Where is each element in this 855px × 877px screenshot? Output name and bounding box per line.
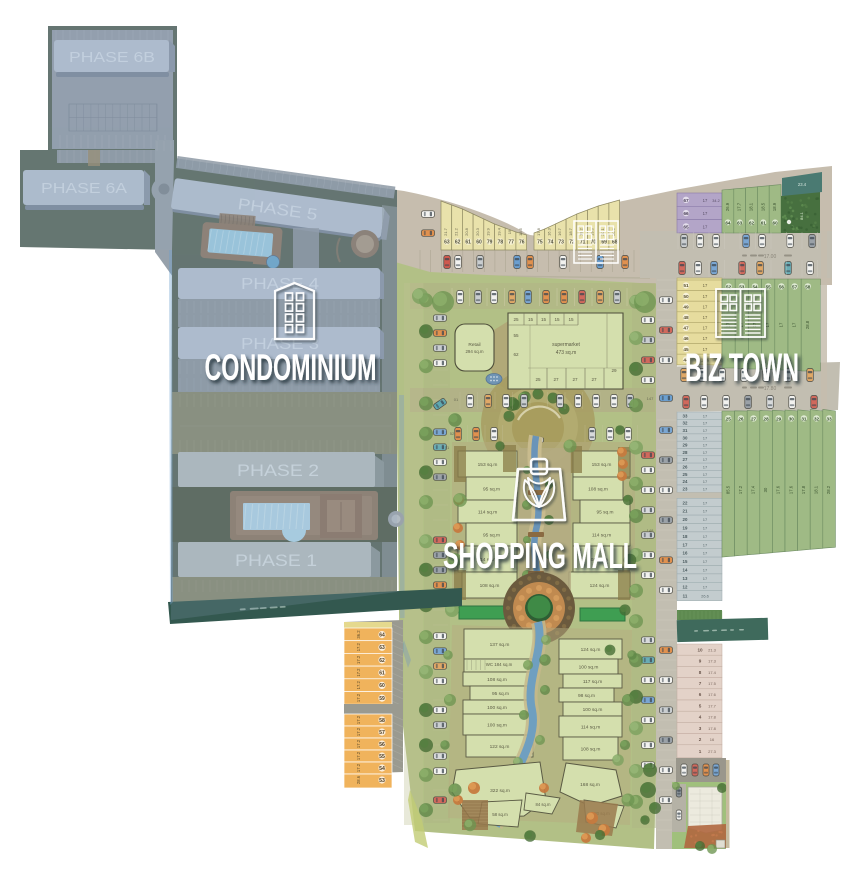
svg-text:29: 29 (611, 368, 617, 373)
svg-text:17: 17 (703, 559, 708, 564)
svg-text:17.6: 17.6 (788, 485, 793, 494)
svg-text:17: 17 (703, 294, 708, 299)
svg-text:17: 17 (703, 336, 708, 341)
svg-text:19: 19 (507, 229, 512, 234)
svg-text:25: 25 (683, 472, 688, 477)
svg-text:32: 32 (683, 421, 688, 426)
svg-text:63: 63 (444, 240, 450, 246)
svg-text:58 sq.m: 58 sq.m (492, 812, 508, 817)
svg-text:100 sq.m: 100 sq.m (579, 665, 599, 671)
svg-text:98 sq.m: 98 sq.m (578, 693, 595, 699)
svg-text:12: 12 (683, 584, 688, 589)
svg-text:22: 22 (683, 500, 688, 505)
svg-text:17: 17 (703, 472, 708, 477)
svg-text:322 sq.m: 322 sq.m (490, 788, 510, 794)
svg-text:16.7: 16.7 (557, 227, 562, 236)
svg-text:17: 17 (703, 435, 708, 440)
svg-text:168 sq.m: 168 sq.m (580, 782, 600, 788)
svg-text:17: 17 (703, 421, 708, 426)
svg-text:17: 17 (703, 542, 708, 547)
svg-text:21.7: 21.7 (443, 227, 448, 236)
svg-text:64: 64 (725, 220, 731, 225)
svg-text:26.6: 26.6 (701, 594, 710, 599)
svg-text:85.5: 85.5 (725, 485, 730, 494)
svg-text:15: 15 (528, 317, 534, 322)
svg-text:25: 25 (513, 317, 519, 322)
svg-text:29: 29 (683, 443, 688, 448)
svg-text:BIZ TOWN: BIZ TOWN (685, 346, 799, 390)
svg-text:18.1: 18.1 (814, 485, 819, 494)
svg-text:17.8: 17.8 (801, 485, 806, 494)
svg-text:30: 30 (789, 416, 795, 421)
svg-text:17: 17 (703, 534, 708, 539)
svg-text:31: 31 (683, 428, 688, 433)
svg-text:17: 17 (703, 428, 708, 433)
svg-text:17: 17 (703, 526, 708, 531)
svg-text:17.2: 17.2 (356, 739, 361, 748)
svg-text:25: 25 (726, 416, 732, 421)
svg-text:95 sq.m: 95 sq.m (492, 691, 509, 697)
svg-text:33: 33 (683, 413, 688, 418)
svg-text:17.8: 17.8 (708, 715, 717, 720)
svg-text:30: 30 (683, 435, 688, 440)
svg-text:56: 56 (779, 284, 785, 289)
svg-text:19.4: 19.4 (496, 227, 501, 236)
svg-text:36.2: 36.2 (356, 630, 361, 639)
svg-text:31: 31 (801, 416, 807, 421)
svg-text:62: 62 (749, 220, 755, 225)
svg-text:46: 46 (683, 336, 689, 342)
svg-text:62: 62 (513, 352, 519, 357)
svg-text:84 sq.m: 84 sq.m (536, 802, 551, 807)
svg-text:17: 17 (703, 576, 708, 581)
svg-text:18.5: 18.5 (760, 202, 765, 211)
svg-text:62: 62 (379, 658, 385, 664)
svg-text:53: 53 (379, 778, 385, 784)
svg-text:17: 17 (703, 443, 708, 448)
svg-text:25: 25 (535, 377, 541, 382)
svg-text:14: 14 (683, 568, 688, 573)
svg-text:Retail: Retail (468, 342, 480, 348)
svg-text:24: 24 (683, 479, 688, 484)
svg-text:28.6: 28.6 (356, 775, 361, 784)
svg-text:21.3: 21.3 (708, 647, 717, 652)
svg-text:17: 17 (703, 450, 708, 455)
svg-text:3: 3 (699, 726, 702, 731)
svg-text:17.2: 17.2 (356, 655, 361, 664)
svg-text:76: 76 (519, 240, 525, 246)
svg-text:65: 65 (683, 224, 689, 230)
svg-text:17.4: 17.4 (708, 670, 717, 675)
svg-text:47: 47 (683, 326, 689, 332)
svg-text:27: 27 (572, 377, 578, 382)
svg-text:17.8: 17.8 (708, 726, 717, 731)
svg-text:17: 17 (703, 486, 708, 491)
svg-text:26: 26 (738, 416, 744, 421)
svg-text:17.5: 17.5 (708, 681, 717, 686)
svg-text:100 sq.m: 100 sq.m (487, 723, 507, 729)
svg-text:66: 66 (683, 211, 689, 217)
svg-text:16: 16 (710, 737, 715, 742)
svg-text:WC 184 sq.m: WC 184 sq.m (486, 662, 513, 667)
svg-text:01: 01 (454, 397, 459, 402)
svg-text:21.2: 21.2 (454, 227, 459, 236)
svg-text:59: 59 (379, 696, 385, 702)
svg-text:17.7: 17.7 (708, 703, 717, 708)
svg-text:95 sq.m: 95 sq.m (483, 487, 500, 493)
svg-text:57: 57 (792, 284, 798, 289)
svg-text:19.9: 19.9 (486, 227, 491, 236)
svg-text:17: 17 (703, 211, 708, 216)
svg-text:63: 63 (737, 220, 743, 225)
svg-text:1: 1 (699, 749, 702, 754)
svg-text:11: 11 (683, 594, 688, 599)
svg-text:20.3: 20.3 (475, 227, 480, 236)
svg-text:17: 17 (703, 500, 708, 505)
svg-text:21: 21 (683, 509, 688, 514)
svg-text:117 sq.m: 117 sq.m (583, 679, 602, 685)
svg-text:61: 61 (465, 240, 471, 246)
svg-text:17.7: 17.7 (737, 202, 742, 211)
svg-text:17: 17 (703, 315, 708, 320)
svg-text:8: 8 (699, 670, 702, 675)
svg-text:55: 55 (379, 754, 385, 760)
svg-text:17: 17 (683, 542, 688, 547)
svg-text:60: 60 (379, 683, 385, 689)
svg-text:17.2: 17.2 (356, 681, 361, 690)
svg-text:15: 15 (683, 559, 688, 564)
svg-text:29: 29 (776, 416, 782, 421)
svg-text:27: 27 (553, 377, 559, 382)
svg-text:55: 55 (513, 333, 519, 338)
svg-text:17.2: 17.2 (356, 642, 361, 651)
svg-text:55: 55 (766, 284, 772, 289)
svg-text:18.7: 18.7 (568, 227, 573, 236)
svg-text:78: 78 (498, 240, 504, 246)
svg-text:61: 61 (379, 671, 385, 677)
svg-text:57: 57 (379, 730, 385, 736)
svg-text:20.8: 20.8 (464, 227, 469, 236)
svg-text:5: 5 (699, 703, 702, 708)
svg-text:17.2: 17.2 (356, 693, 361, 702)
svg-text:26.9: 26.9 (725, 202, 730, 211)
svg-text:100 sq.m: 100 sq.m (487, 705, 507, 711)
svg-text:64: 64 (379, 632, 385, 638)
svg-text:17.4: 17.4 (751, 485, 756, 494)
svg-text:17.2: 17.2 (356, 668, 361, 677)
svg-text:52: 52 (450, 431, 455, 436)
svg-text:108 sq.m: 108 sq.m (581, 747, 601, 753)
svg-text:60: 60 (773, 220, 779, 225)
svg-text:77: 77 (508, 240, 514, 246)
svg-text:28.2: 28.2 (826, 485, 831, 494)
svg-text:51: 51 (683, 283, 689, 289)
svg-text:18.9: 18.9 (772, 202, 777, 211)
svg-text:13: 13 (683, 576, 688, 581)
svg-text:17: 17 (703, 479, 708, 484)
svg-text:124 sq.m: 124 sq.m (581, 647, 601, 653)
svg-text:18.5: 18.5 (518, 227, 523, 236)
svg-text:148: 148 (647, 528, 654, 533)
svg-text:supermarket: supermarket (552, 342, 580, 348)
svg-text:17.00: 17.00 (764, 254, 777, 260)
svg-text:473 sq.m: 473 sq.m (556, 350, 577, 356)
svg-text:100 sq.m: 100 sq.m (583, 707, 603, 713)
svg-text:17: 17 (792, 322, 797, 327)
svg-text:17.8: 17.8 (536, 227, 541, 236)
svg-text:147: 147 (647, 396, 654, 401)
svg-text:153 sq.m: 153 sq.m (478, 462, 498, 468)
svg-text:19: 19 (683, 526, 688, 531)
svg-text:16: 16 (683, 551, 688, 556)
svg-text:28: 28 (683, 450, 688, 455)
svg-text:17: 17 (703, 198, 708, 203)
svg-text:54: 54 (379, 766, 385, 772)
svg-text:61: 61 (761, 220, 767, 225)
svg-text:32: 32 (814, 416, 820, 421)
svg-text:74: 74 (548, 240, 554, 246)
svg-text:122 sq.m: 122 sq.m (490, 744, 510, 750)
svg-text:17: 17 (778, 322, 783, 327)
svg-text:7: 7 (699, 681, 702, 686)
svg-text:27: 27 (683, 457, 688, 462)
svg-text:17.2: 17.2 (356, 763, 361, 772)
svg-text:294 sq.m: 294 sq.m (465, 349, 483, 354)
svg-text:26: 26 (683, 465, 688, 470)
svg-text:108 sq.m: 108 sq.m (480, 583, 500, 589)
svg-text:17.2: 17.2 (356, 727, 361, 736)
svg-text:33: 33 (827, 416, 833, 421)
svg-text:51: 51 (445, 445, 450, 450)
svg-text:2: 2 (699, 737, 702, 742)
svg-text:18: 18 (683, 534, 688, 539)
svg-text:67: 67 (683, 198, 689, 204)
svg-text:114 sq.m: 114 sq.m (581, 725, 600, 731)
svg-text:114 sq.m: 114 sq.m (478, 510, 497, 516)
svg-text:15: 15 (541, 317, 547, 322)
svg-text:17.6: 17.6 (776, 485, 781, 494)
svg-text:56: 56 (379, 742, 385, 748)
svg-text:16.3: 16.3 (547, 227, 552, 236)
svg-text:17: 17 (703, 465, 708, 470)
svg-text:17: 17 (703, 224, 708, 229)
svg-text:4: 4 (699, 715, 702, 720)
svg-text:34.2: 34.2 (712, 199, 719, 203)
svg-text:17.2: 17.2 (356, 715, 361, 724)
svg-text:79: 79 (487, 240, 493, 246)
svg-text:73: 73 (558, 240, 564, 246)
svg-text:17: 17 (703, 551, 708, 556)
svg-text:153 sq.m: 153 sq.m (592, 462, 612, 468)
svg-text:17: 17 (703, 304, 708, 309)
svg-text:17: 17 (703, 413, 708, 418)
svg-text:27: 27 (751, 416, 757, 421)
svg-text:95 sq.m: 95 sq.m (596, 510, 613, 516)
svg-text:58: 58 (379, 718, 385, 724)
svg-text:50: 50 (683, 294, 689, 300)
svg-text:27: 27 (591, 377, 597, 382)
svg-text:17: 17 (703, 457, 708, 462)
svg-text:17: 17 (765, 322, 770, 327)
svg-text:SHOPPING MALL: SHOPPING MALL (443, 535, 637, 576)
svg-text:23.4: 23.4 (798, 182, 807, 187)
svg-text:17: 17 (703, 568, 708, 573)
svg-text:84.1: 84.1 (799, 211, 804, 220)
svg-text:63: 63 (379, 645, 385, 651)
svg-text:9: 9 (699, 659, 702, 664)
svg-text:17: 17 (703, 509, 708, 514)
svg-text:75: 75 (537, 240, 543, 246)
svg-text:28.8: 28.8 (805, 320, 810, 329)
svg-text:49: 49 (683, 304, 689, 310)
svg-text:23: 23 (683, 486, 688, 491)
svg-text:10: 10 (697, 647, 703, 652)
svg-text:62: 62 (455, 240, 461, 246)
svg-text:6: 6 (699, 692, 702, 697)
svg-text:17: 17 (703, 326, 708, 331)
svg-text:17.2: 17.2 (356, 751, 361, 760)
svg-text:17: 17 (703, 517, 708, 522)
svg-text:17: 17 (703, 584, 708, 589)
svg-text:CONDOMINIUM: CONDOMINIUM (205, 347, 377, 388)
svg-text:20: 20 (683, 517, 688, 522)
svg-text:58: 58 (805, 284, 811, 289)
svg-text:27.3: 27.3 (708, 749, 717, 754)
svg-text:15: 15 (568, 317, 574, 322)
svg-text:17.2: 17.2 (738, 485, 743, 494)
svg-text:108 sq.m: 108 sq.m (588, 487, 608, 493)
svg-text:137 sq.m: 137 sq.m (490, 642, 510, 648)
svg-text:48: 48 (683, 315, 689, 321)
svg-text:108 sq.m: 108 sq.m (487, 677, 507, 683)
svg-text:124 sq.m: 124 sq.m (590, 583, 610, 589)
svg-text:17.3: 17.3 (708, 659, 717, 664)
svg-text:30: 30 (763, 487, 768, 492)
svg-text:17: 17 (703, 283, 708, 288)
svg-text:17.6: 17.6 (708, 692, 717, 697)
svg-text:18.1: 18.1 (749, 202, 754, 211)
svg-text:28: 28 (764, 416, 770, 421)
svg-text:15: 15 (554, 317, 560, 322)
svg-text:60: 60 (476, 240, 482, 246)
